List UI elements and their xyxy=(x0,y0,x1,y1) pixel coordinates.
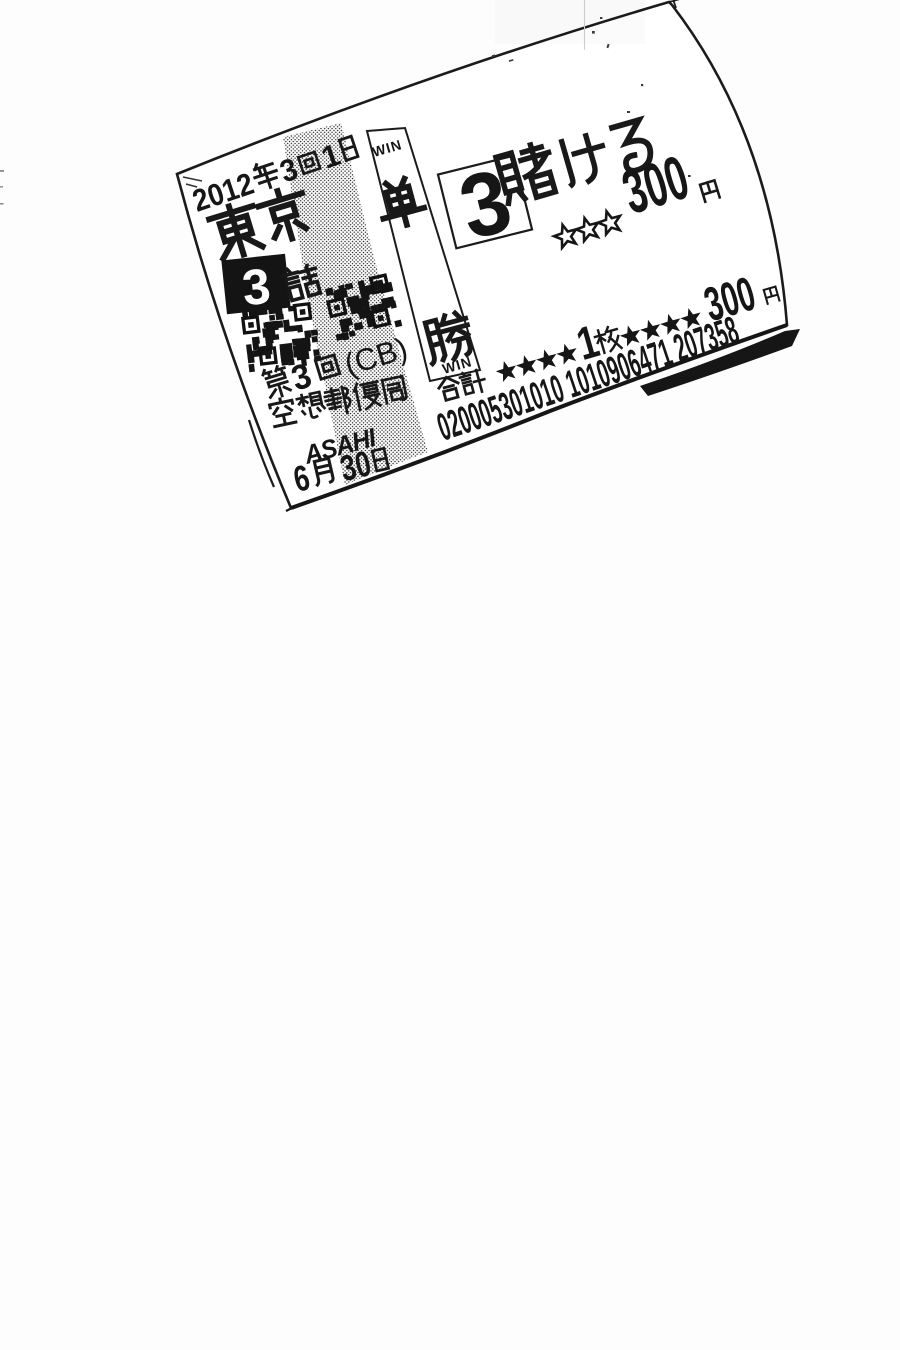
svg-text:3: 3 xyxy=(240,258,274,317)
